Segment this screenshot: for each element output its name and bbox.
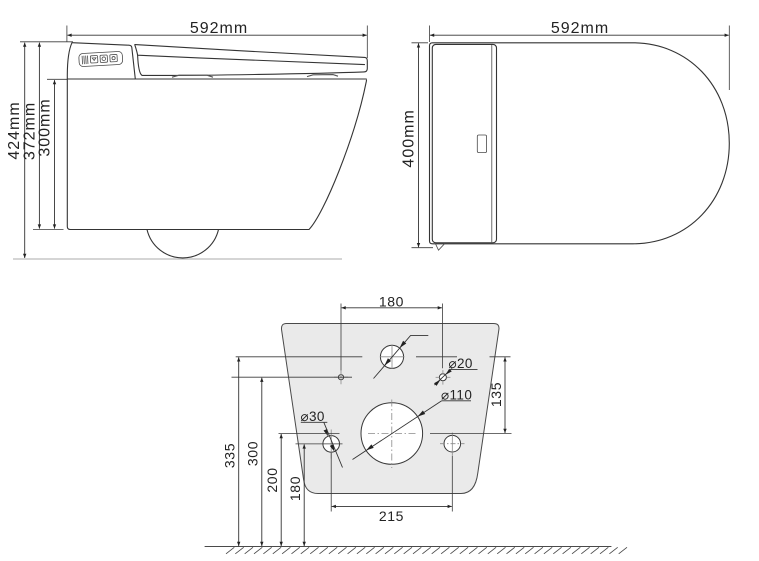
svg-text:424mm: 424mm bbox=[6, 101, 23, 159]
svg-text:135: 135 bbox=[488, 382, 504, 407]
svg-text:400mm: 400mm bbox=[401, 109, 418, 167]
svg-text:335: 335 bbox=[222, 443, 238, 468]
svg-text:300mm: 300mm bbox=[37, 98, 54, 156]
svg-text:592mm: 592mm bbox=[190, 20, 248, 37]
svg-text:592mm: 592mm bbox=[551, 20, 609, 37]
svg-text:180: 180 bbox=[379, 293, 404, 309]
svg-text:300: 300 bbox=[245, 441, 261, 466]
svg-text:⌀20: ⌀20 bbox=[449, 356, 473, 371]
svg-text:⌀30: ⌀30 bbox=[301, 409, 325, 424]
svg-text:180: 180 bbox=[287, 476, 303, 501]
svg-text:215: 215 bbox=[379, 508, 404, 524]
svg-text:200: 200 bbox=[264, 467, 280, 492]
svg-text:⌀110: ⌀110 bbox=[441, 387, 472, 402]
